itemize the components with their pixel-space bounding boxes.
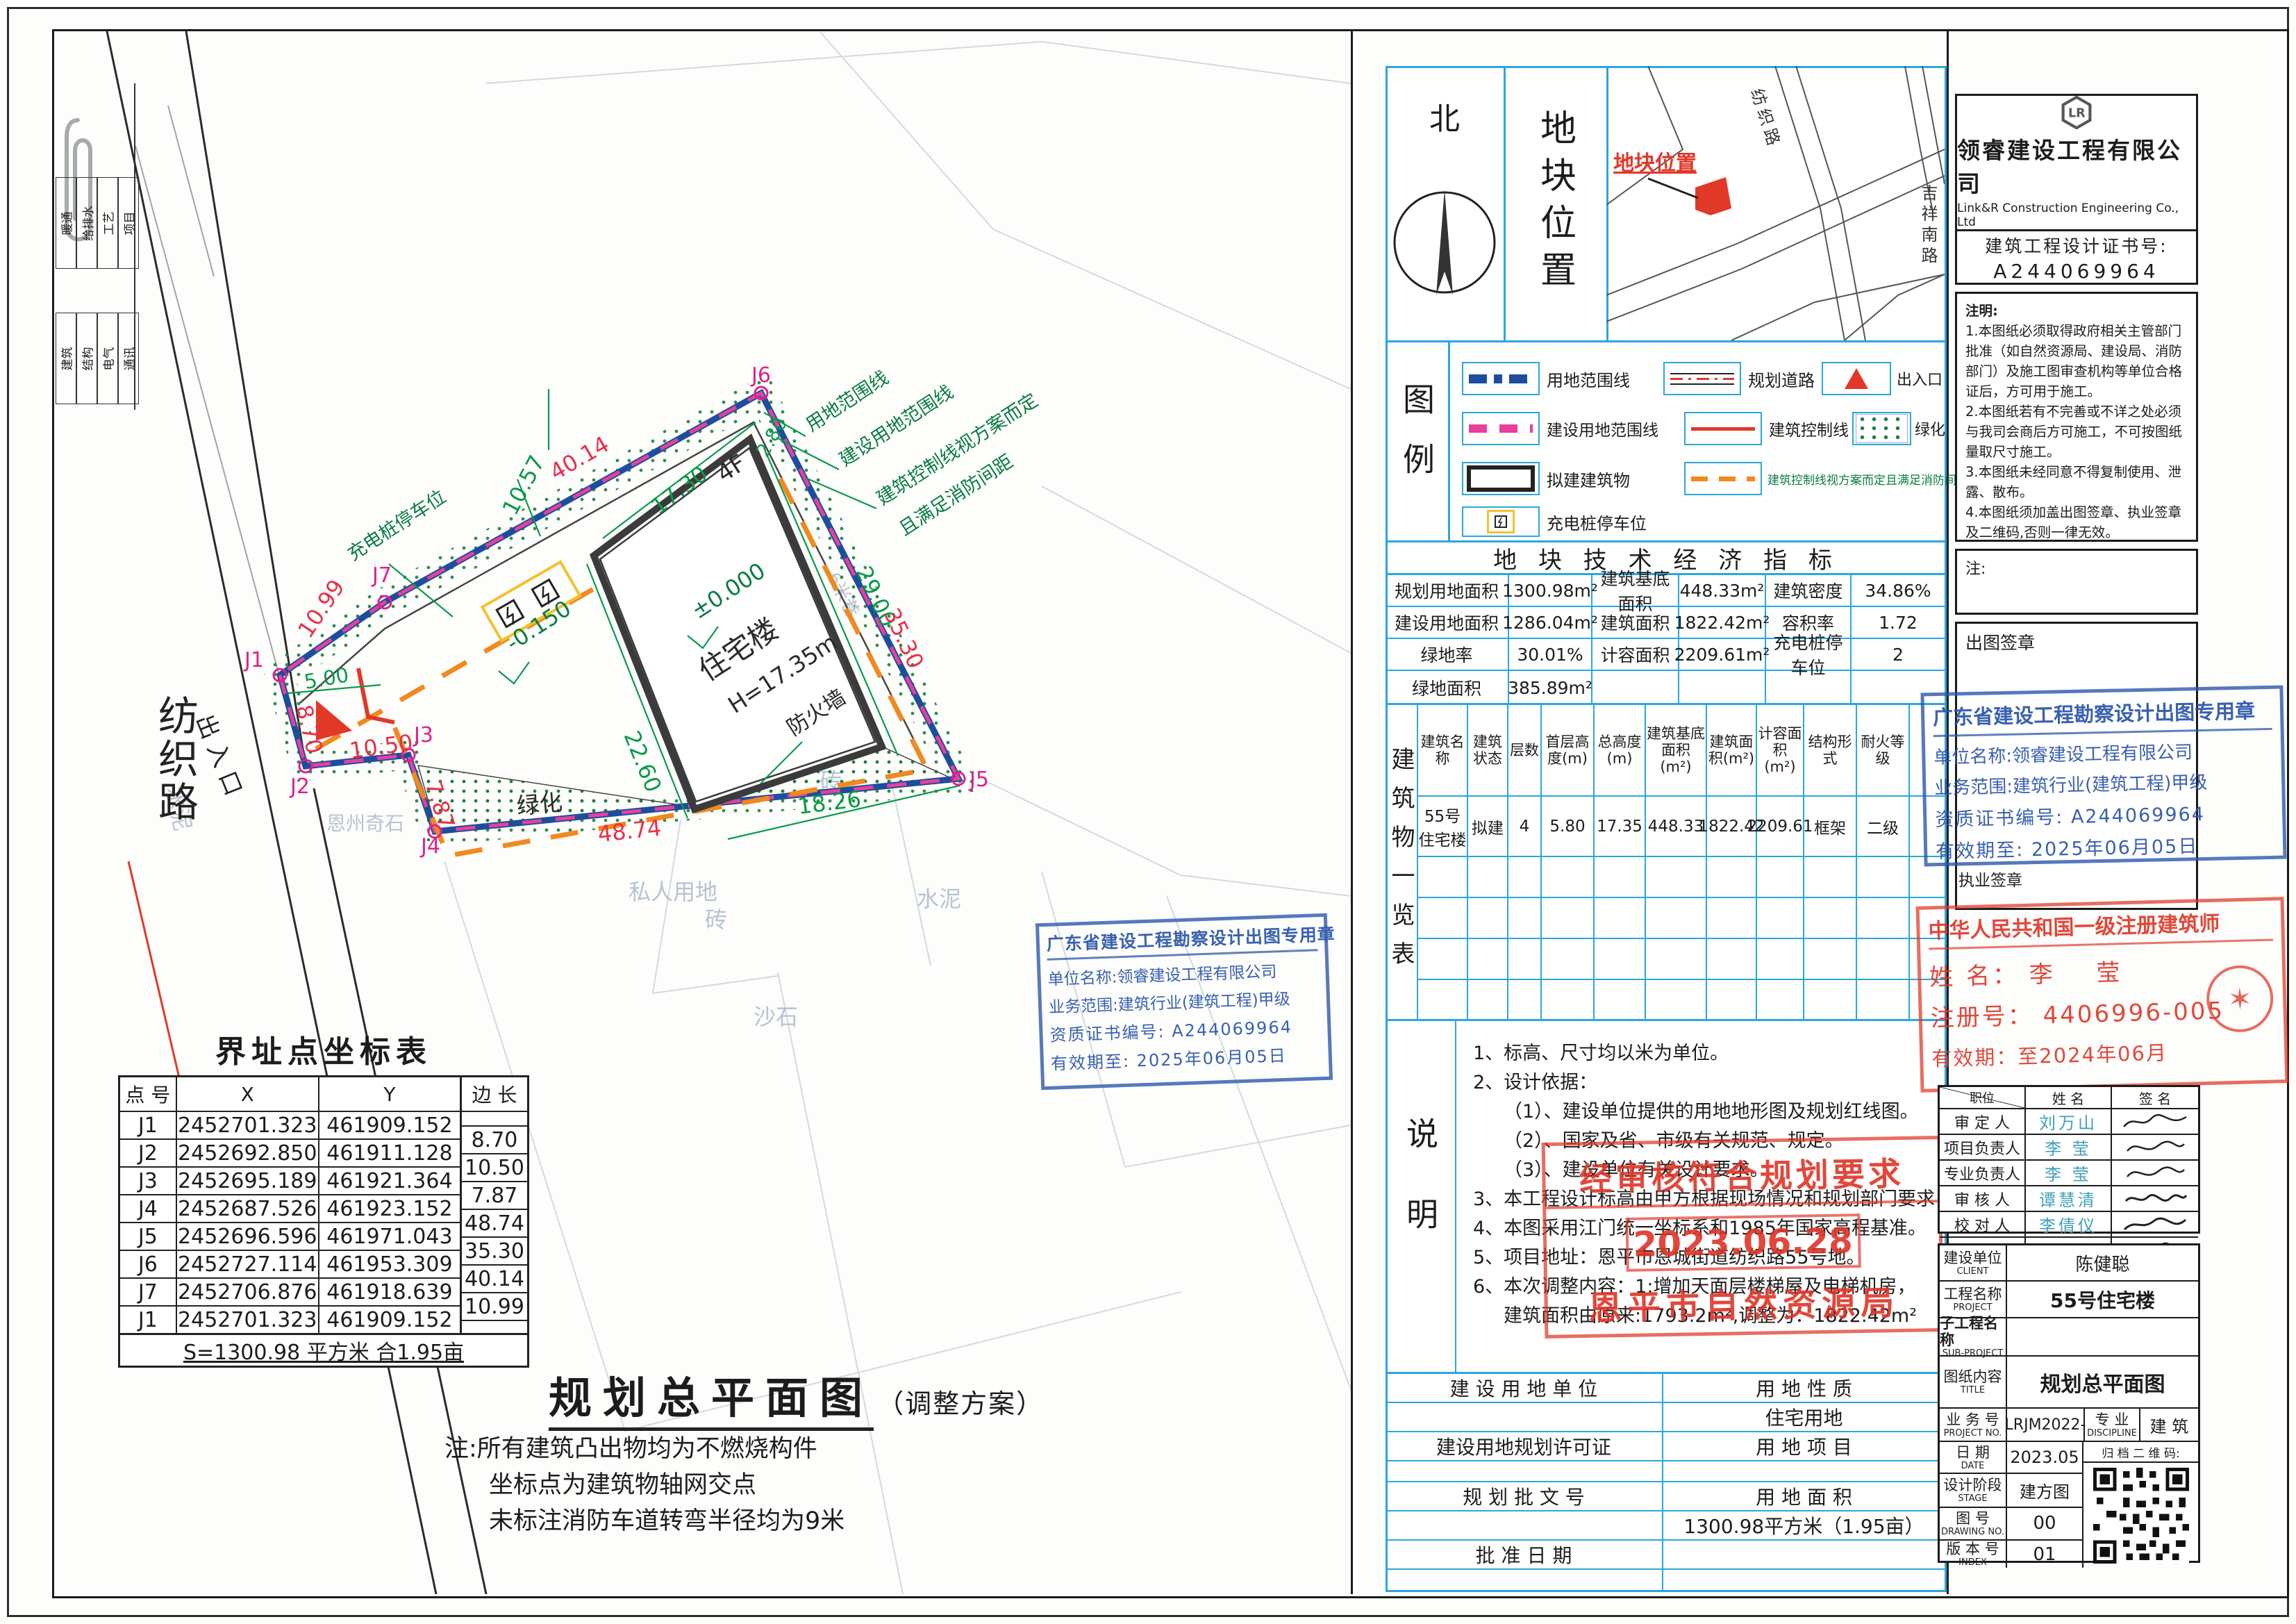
point-label: J7 (371, 563, 392, 588)
legend-item-label: 建设用地范围线 (1547, 412, 1658, 445)
indicator-label: 绿地率 (1386, 639, 1509, 671)
landuse-cell: 用 地 性 质 (1663, 1374, 1945, 1403)
north-arrow-icon (1386, 138, 1504, 347)
dim-label: 48.74 (597, 815, 663, 847)
buildings-panel-label: 建筑物一览表 (1384, 747, 1418, 980)
date-value: 2023.05 (2007, 1442, 2083, 1473)
empty-cell (1542, 898, 1595, 939)
coord-y: 461923.152 (319, 1195, 460, 1222)
empty-cell (1418, 898, 1468, 939)
building-cell: 二级 (1857, 797, 1910, 857)
indicator-label: 计容面积 (1592, 639, 1679, 671)
signoff-name: 李 莹 (2026, 1161, 2112, 1186)
title-label-en: TITLE (1961, 1385, 1985, 1395)
edge-length: 10.50 (462, 1154, 527, 1182)
landuse-cell: 建设用地规划许可证 (1386, 1432, 1663, 1461)
sheet-edge-lines (135, 106, 288, 709)
buildings-header: 层数 (1508, 705, 1542, 797)
empty-cell (1757, 857, 1804, 898)
drawing-sheet: 私人用地 砖 砖 水泥 水泥 沙石 恩州奇石 6米巷 (0, 0, 2296, 1624)
company-note: 3.本图纸未经同意不得复制使用、泄露、散布。 (1965, 462, 2188, 502)
point-label: J6 (750, 363, 771, 388)
coord-y: 461909.152 (319, 1307, 460, 1333)
legend-swatch-green (1852, 412, 1911, 445)
company-note: 4.本图纸须加盖出图签章、执业签章及二维码,否则一律无效。 (1965, 502, 2188, 542)
legend-swatch-site-boundary (1462, 362, 1540, 395)
note-line: （3）、建设单位有关设计要求。 (1473, 1156, 1940, 1185)
coord-y: 461971.043 (319, 1223, 460, 1250)
drawing-note: 未标注消防车道转弯半径均为9米 (444, 1503, 845, 1539)
building-cell: 55号住宅楼 (1418, 797, 1468, 857)
company-note: 2.本图纸若有不完善或不详之处必须与我司会商后方可施工，不可按图纸量取尺寸施工。 (1965, 401, 2188, 462)
signoff-header-name: 姓 名 (2026, 1087, 2112, 1109)
title-block: 建设单位 CLIENT 陈健聪 工程名称 PROJECT 55号住宅楼 子工程名… (1938, 1243, 2200, 1563)
point-id: J1 (120, 1112, 177, 1138)
coordinate-table-title: 界址点坐标表 (118, 1027, 529, 1071)
map-leader-line (1648, 179, 1698, 198)
empty-cell (1595, 980, 1646, 1019)
coord-y: 461909.152 (319, 1112, 460, 1138)
no-value: LRJM2022- (2007, 1409, 2085, 1441)
col-header-y: Y (319, 1077, 460, 1111)
signature (2112, 1161, 2198, 1186)
landuse-cell: 1300.98平方米（1.95亩） (1663, 1511, 1945, 1541)
landuse-cell (1386, 1570, 1663, 1591)
empty-cell (1910, 857, 1947, 898)
legend-swatch-proposed-building (1462, 462, 1540, 495)
buildings-header: 建筑名称 (1418, 705, 1468, 797)
empty-cell (1508, 939, 1542, 980)
legend-item-label: 出入口 (1897, 362, 1943, 395)
coord-y: 461918.639 (319, 1279, 460, 1305)
landuse-cell (1386, 1461, 1663, 1482)
dwg-value: 00 (2007, 1508, 2083, 1539)
empty-cell (1707, 980, 1757, 1019)
legend-item-label: 建筑控制线视方案而定且满足消防间距 (1767, 462, 1968, 495)
legend-item-label: 充电桩停车位 (1547, 506, 1647, 537)
coordinate-table: 界址点坐标表 点 号 X Y J12452701.323461909.152 J… (118, 1027, 529, 1368)
notes-panel: 说明 1、标高、尺寸均以米为单位。 2、设计依据： （1）、建设单位提供的用地地… (1386, 1019, 1947, 1374)
drawing-note: 坐标点为建筑物轴网交点 (444, 1467, 845, 1503)
buildings-header: 建筑状态 (1468, 705, 1508, 797)
location-label-box: 地块位置 (1504, 66, 1608, 340)
landuse-cell: 建 设 用 地 单 位 (1386, 1374, 1663, 1403)
empty-cell (1757, 980, 1804, 1019)
indicator-value: 448.33m² (1679, 575, 1766, 607)
empty-cell (1646, 980, 1707, 1019)
table-row: J42452687.526461923.152 (120, 1195, 460, 1223)
empty-cell (1757, 898, 1804, 939)
indicator-value: 30.01% (1509, 639, 1592, 671)
note-line: 4、本图采用江门统一坐标系和1985年国家高程基准。 (1473, 1214, 1940, 1243)
strip-label: 暖通 (58, 211, 75, 235)
indicator-empty (1766, 671, 1852, 704)
road-name-label: 纺织路 (154, 695, 196, 824)
buildings-panel: 建筑物一览表 建筑名称 建筑状态 层数 首层高度(m) 总高度(m) 建筑基底面… (1386, 703, 1947, 1021)
company-logo: LR (2038, 96, 2115, 129)
strip-label: 工艺 (99, 211, 117, 235)
project-label-en: PROJECT (1953, 1302, 1992, 1313)
empty-cell (1508, 898, 1542, 939)
dwg-label-cn: 图 号 (1956, 1510, 1990, 1527)
buildings-header: 建筑面积(m²) (1707, 705, 1757, 797)
building-cell: 17.35 (1595, 797, 1646, 857)
coord-x: 2452701.323 (177, 1307, 319, 1333)
strip-label: 结构 (78, 347, 96, 370)
dim-label: 22.60 (619, 727, 667, 796)
building-cell: 4 (1508, 797, 1542, 857)
table-row: J12452701.323461909.152 (120, 1112, 460, 1140)
landuse-cell: 住宅用地 (1663, 1403, 1945, 1432)
indicator-value: 34.86% (1852, 575, 1945, 607)
empty-cell (1595, 898, 1646, 939)
empty-cell (1468, 980, 1508, 1019)
drawing-notes: 注:所有建筑凸出物均为不燃烧构件 坐标点为建筑物轴网交点 未标注消防车道转弯半径… (444, 1431, 845, 1539)
strip-label: 给排水 (78, 206, 96, 241)
coord-x: 2452727.114 (177, 1251, 319, 1277)
legend-swatch-control-line (1684, 412, 1762, 445)
col-header-point: 点 号 (120, 1077, 177, 1111)
signature (2112, 1135, 2198, 1161)
stage-label-cn: 设计阶段 (1944, 1477, 2002, 1493)
empty-cell (1646, 939, 1707, 980)
edge-length: 8.70 (462, 1125, 527, 1154)
note-line: 3、本工程设计标高由甲方根据现场情况和规划部门要求自行放标高确定。 (1473, 1185, 1940, 1214)
coord-x: 2452687.526 (177, 1195, 319, 1222)
bg-label: 私人用地 (629, 879, 717, 905)
landuse-cell: 用 地 面 积 (1663, 1482, 1945, 1511)
signoff-role: 项目负责人 (1940, 1135, 2026, 1161)
notes-label-cell: 说明 (1386, 1021, 1456, 1374)
title-value: 规划总平面图 (2007, 1357, 2198, 1407)
leader-label: 充电桩停车位 (344, 486, 450, 565)
project-value: 55号住宅楼 (2007, 1282, 2198, 1317)
legend-label-cell: 图例 (1386, 342, 1450, 542)
note2-box: 注: (1955, 549, 2198, 615)
empty-cell (1508, 980, 1542, 1019)
disc-value: 建 筑 (2140, 1409, 2198, 1441)
drawing-title-sub: （调整方案） (877, 1389, 1044, 1419)
note2-title: 注: (1965, 561, 1986, 578)
signoff-table: 职位 姓 名 签 名 审 定 人 刘万山 项目负责人 李 莹 专业负责人 李 莹… (1938, 1085, 2200, 1234)
point-label: J5 (968, 768, 989, 792)
map-road2-label: 吉祥南路 (1916, 184, 1940, 267)
legend-panel: 图例 用地范围线 规划道路 出入口 建设用地范围线 建筑控制线 绿化 拟建建筑物… (1386, 340, 1947, 542)
project-label-cn: 工程名称 (1944, 1286, 2002, 1302)
notes-content: 1、标高、尺寸均以米为单位。 2、设计依据： （1）、建设单位提供的用地地形图及… (1456, 1021, 1947, 1374)
legend-item-label: 用地范围线 (1547, 362, 1630, 395)
legend-item-label: 建筑控制线 (1769, 412, 1849, 445)
empty-cell (1595, 857, 1646, 898)
empty-cell (1910, 980, 1947, 1019)
legend-item-label: 绿化 (1915, 412, 1945, 445)
company-box: LR 领睿建设工程有限公司 Link&R Construction Engine… (1955, 94, 2198, 285)
qr-code-svg (2093, 1468, 2189, 1564)
map-road1-label: 纺织路 (1747, 86, 1784, 151)
indicator-empty (1852, 671, 1945, 704)
side-strip-group-1: 暖通 给排水 工艺 项目 (56, 177, 134, 269)
strip-label: 项目 (120, 211, 138, 235)
client-label-cn: 建设单位 (1944, 1250, 2002, 1266)
cert-label: 建筑工程设计证书号: (1985, 233, 2168, 258)
empty-cell (1707, 939, 1757, 980)
empty-cell (1804, 857, 1857, 898)
empty-cell (1542, 857, 1595, 898)
drawing-title-block: 规划总平面图 （调整方案） (549, 1363, 1044, 1425)
buildings-header: 结构形式 (1804, 705, 1857, 797)
note-line: （1）、建设单位提供的用地地形图及规划红线图。 (1473, 1097, 1940, 1127)
legend-item-label: 拟建建筑物 (1547, 462, 1630, 495)
point-id: J1 (120, 1307, 177, 1333)
no-label-cn: 业 务 号 (1946, 1411, 1999, 1428)
indicator-label: 绿地面积 (1386, 671, 1509, 704)
empty-cell (1542, 980, 1595, 1019)
strip-label: 电气 (99, 347, 117, 370)
empty-cell (1707, 857, 1757, 898)
table-row: J62452727.114461953.309 (120, 1251, 460, 1279)
landuse-cell (1663, 1570, 1945, 1591)
coord-x: 2452701.323 (177, 1112, 319, 1138)
indicator-value: 1822.42m² (1679, 607, 1766, 639)
buildings-header: 首层高度(m) (1542, 705, 1595, 797)
empty-cell (1804, 939, 1857, 980)
point-label: J4 (419, 834, 440, 859)
company-notes-box: 注明: 1.本图纸必须取得政府相关主管部门批准（如自然资源局、建设局、消防部门）… (1955, 292, 2198, 542)
client-value: 陈健聪 (2007, 1245, 2198, 1280)
note-line: 6、本次调整内容：1:增加天面层楼梯屋及电梯机房， (1473, 1273, 1940, 1302)
no-label-en: PROJECT NO. (1944, 1428, 2002, 1439)
col-header-edge: 边 长 (462, 1077, 527, 1112)
buildings-label-cell: 建筑物一览表 (1386, 705, 1418, 1021)
disc-label-en: DISCIPLINE (2087, 1428, 2137, 1439)
table-row: J22452692.850461911.128 (120, 1140, 460, 1168)
signoff-role: 校 对 人 (1940, 1212, 2026, 1238)
company-note: 1.本图纸必须取得政府相关主管部门批准（如自然资源局、建设局、消防部门）及施工图… (1965, 321, 2188, 401)
qr-label: 归 档 二 维 码: (2083, 1442, 2198, 1463)
cert-number: A244069964 (1993, 260, 2159, 283)
edge-length: 35.30 (462, 1238, 527, 1266)
coord-y: 461911.128 (319, 1140, 460, 1166)
coord-y: 461953.309 (319, 1251, 460, 1277)
signoff-name: 李倩仪 (2026, 1212, 2112, 1238)
empty-cell (1468, 939, 1508, 980)
bg-label: 砖 (705, 906, 727, 933)
signature (2112, 1212, 2198, 1238)
coord-x: 2452695.189 (177, 1168, 319, 1194)
signoff-name: 谭慧清 (2026, 1186, 2112, 1212)
coord-y: 461921.364 (319, 1168, 460, 1194)
coord-x: 2452706.876 (177, 1279, 319, 1305)
indicator-empty (1679, 671, 1766, 704)
strip-label: 建筑 (58, 347, 75, 370)
point-id: J5 (120, 1223, 177, 1250)
landuse-cell: 规 划 批 文 号 (1386, 1482, 1663, 1511)
empty-cell (1857, 980, 1910, 1019)
buildings-header: 计容面积(m²) (1757, 705, 1804, 797)
table-row: J12452701.323461909.152 (120, 1307, 460, 1333)
area-summary: S=1300.98 平方米 合1.95亩 (118, 1335, 529, 1368)
signoff-role: 专业负责人 (1940, 1161, 2026, 1186)
indicator-value: 2 (1852, 639, 1945, 671)
bg-label: 恩州奇石 (326, 812, 404, 835)
indicator-label: 建设用地面积 (1386, 607, 1509, 639)
green-area-label: 绿化 (515, 788, 563, 820)
empty-cell (1646, 898, 1707, 939)
company-name-en: Link&R Construction Engineering Co., Ltd (1957, 201, 2196, 229)
coord-x: 2452692.850 (177, 1140, 319, 1166)
lightning-icon (1495, 515, 1507, 528)
empty-cell (1707, 898, 1757, 939)
leader-label: 且满足消防间距 (895, 451, 1017, 540)
table-row: J32452695.189461921.364 (120, 1168, 460, 1195)
note-line: 1、标高、尺寸均以米为单位。 (1473, 1039, 1940, 1068)
empty-cell (1468, 857, 1508, 898)
note-line: （2）、国家及省、市级有关规范、规定。 (1473, 1127, 1940, 1156)
edge-length: 10.99 (462, 1293, 527, 1321)
signoff-name: 刘万山 (2026, 1109, 2112, 1135)
drawing-note: 注:所有建筑凸出物均为不燃烧构件 (444, 1431, 845, 1467)
strip-label: 通讯 (120, 347, 138, 370)
note-line: 建筑面积由原来:1793.2m²,调整为：1822.42m² (1473, 1302, 1940, 1331)
dwg-label-en: DRAWING NO. (1941, 1527, 2004, 1537)
building-cell: 2209.61 (1757, 797, 1804, 857)
client-label-en: CLIENT (1956, 1266, 1988, 1277)
indicator-label: 建筑密度 (1766, 575, 1852, 607)
north-box: 北 (1386, 66, 1506, 340)
legend-swatch-charging (1462, 506, 1540, 537)
empty-cell (1468, 898, 1508, 939)
point-label: J1 (243, 648, 264, 672)
buildings-header-empty (1910, 705, 1947, 797)
point-id: J4 (120, 1195, 177, 1222)
empty-cell (1910, 939, 1947, 980)
landuse-cell: 批 准 日 期 (1386, 1541, 1663, 1570)
empty-cell (1804, 898, 1857, 939)
signoff-name: 李 莹 (2026, 1135, 2112, 1161)
date-label-en: DATE (1961, 1461, 1985, 1471)
empty-cell (1646, 857, 1707, 898)
bg-label: 水泥 (917, 886, 961, 912)
signoff-role: 审 定 人 (1940, 1109, 2026, 1135)
signoff-role: 审 核 人 (1940, 1186, 2026, 1212)
side-strip-table: 暖通 给排水 工艺 项目 建筑 结构 电气 通讯 (56, 83, 135, 410)
legend-swatch-entrance (1822, 362, 1891, 395)
landuse-cell (1663, 1541, 1945, 1570)
empty-cell (1910, 898, 1947, 939)
company-name-cn: 领睿建设工程有限公司 (1957, 132, 2196, 199)
coord-x: 2452696.596 (177, 1223, 319, 1250)
stage-value: 建方图 (2007, 1474, 2083, 1506)
location-map: 纺织路 地块位置 吉祥南路 (1606, 66, 1945, 340)
sub-value (2007, 1318, 2198, 1355)
north-label: 北 (1386, 94, 1504, 138)
company-notes-title: 注明: (1965, 301, 2188, 321)
table-row: J52452696.596461971.043 (120, 1223, 460, 1251)
empty-cell (1595, 939, 1646, 980)
landuse-cell: 用 地 项 目 (1663, 1432, 1945, 1461)
map-roads (1606, 66, 1945, 340)
site-location-parcel (1695, 177, 1731, 215)
indicator-label: 充电桩停车位 (1766, 639, 1852, 671)
logo-text: LR (2068, 106, 2086, 120)
col-header-x: X (177, 1077, 319, 1111)
empty-cell (1857, 898, 1910, 939)
point-id: J6 (120, 1251, 177, 1277)
landuse-cell (1663, 1461, 1945, 1482)
building-cell-empty (1910, 797, 1947, 857)
empty-cell (1542, 939, 1595, 980)
signoff-header-role: 职位 (1940, 1087, 2026, 1109)
indicators-panel: 地 块 技 术 经 济 指 标 规划用地面积 1300.98m² 建筑基底面积 … (1386, 540, 1947, 705)
buildings-header: 建筑基底面积(m²) (1646, 705, 1707, 797)
indicator-value: 1.72 (1852, 607, 1945, 639)
landuse-cell (1386, 1511, 1663, 1541)
signoff-header-sign: 签 名 (2112, 1087, 2198, 1109)
index-label-cn: 版 本 号 (1946, 1541, 1999, 1557)
empty-cell (1757, 939, 1804, 980)
point-id: J3 (120, 1168, 177, 1194)
stage-label-en: STAGE (1958, 1493, 1987, 1504)
empty-cell (1857, 857, 1910, 898)
legend-item-label: 规划道路 (1748, 362, 1815, 395)
indicator-empty (1592, 671, 1679, 704)
landuse-cell (1386, 1403, 1663, 1432)
issue-stamp-label: 出图签章 (1965, 633, 2035, 653)
legend-swatch-fire-control-line (1684, 462, 1762, 495)
point-id: J7 (120, 1279, 177, 1305)
empty-cell (1418, 939, 1468, 980)
signature (2112, 1186, 2198, 1212)
indicator-value: 385.89m² (1509, 671, 1592, 704)
panel-divider-line (1351, 29, 1353, 1594)
point-label: J3 (413, 723, 433, 747)
empty-cell (1418, 857, 1468, 898)
empty-cell (1418, 980, 1468, 1019)
note-line: 2、设计依据： (1473, 1068, 1940, 1097)
indicator-label: 建筑基底面积 (1592, 575, 1679, 607)
edge-length: 48.74 (462, 1210, 527, 1238)
point-id: J2 (120, 1140, 177, 1166)
legend-panel-label: 图例 (1394, 383, 1440, 502)
index-value: 01 (2007, 1541, 2083, 1568)
side-strip-group-2: 建筑 结构 电气 通讯 (56, 313, 134, 404)
indicator-value: 2209.61m² (1679, 639, 1766, 671)
sub-label-cn: 子工程名称 (1940, 1315, 2006, 1348)
signature (2112, 1109, 2198, 1135)
drawing-title: 规划总平面图 (549, 1373, 874, 1431)
landuse-table: 建 设 用 地 单 位 用 地 性 质 住宅用地 建设用地规划许可证 用 地 项… (1386, 1372, 1947, 1591)
location-map-svg: 纺织路 地块位置 (1606, 66, 1945, 340)
empty-cell (1508, 857, 1542, 898)
edge-length: 40.14 (462, 1266, 527, 1293)
point-label: J2 (289, 774, 310, 799)
building-cell: 框架 (1804, 797, 1857, 857)
building-cell: 5.80 (1542, 797, 1595, 857)
legend-swatch-construction-boundary (1462, 412, 1540, 445)
indicator-value: 1286.04m² (1509, 607, 1592, 639)
table-row: J72452706.876461918.639 (120, 1279, 460, 1307)
date-label-cn: 日 期 (1956, 1444, 1990, 1461)
map-marker-label: 地块位置 (1613, 151, 1697, 176)
legend-swatch-planned-road (1663, 362, 1741, 395)
qr-code (2083, 1463, 2198, 1568)
notes-panel-label: 说明 (1397, 1117, 1443, 1278)
practice-stamp-label: 执业签章 (1958, 867, 2022, 890)
building-cell: 拟建 (1468, 797, 1508, 857)
index-label-en: INDEX (1958, 1557, 1987, 1568)
empty-cell (1857, 939, 1910, 980)
note-line: 5、项目地址：恩平市恩城街道纺织路55号地。 (1473, 1243, 1940, 1273)
